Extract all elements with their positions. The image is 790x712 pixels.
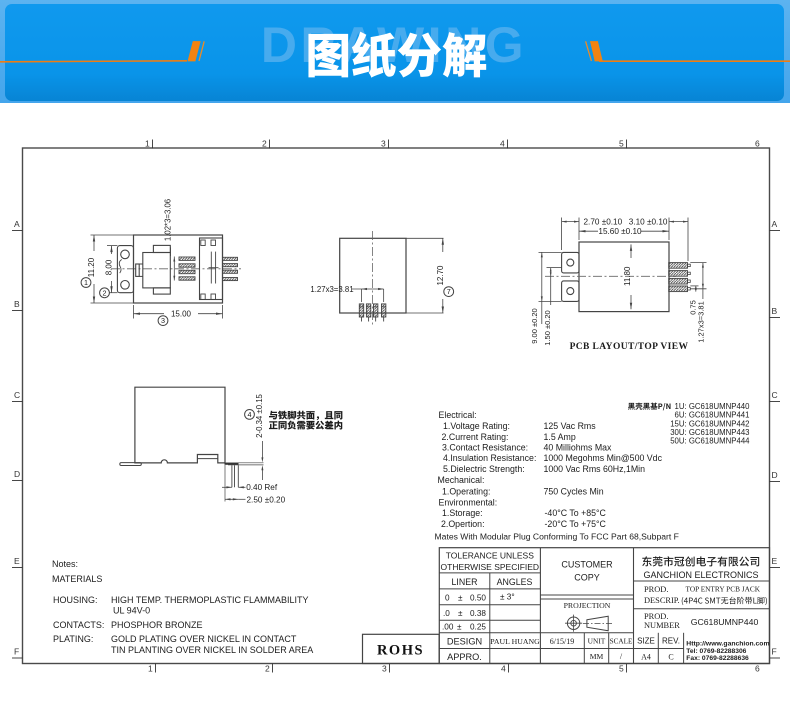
svg-text:2.Opertion:: 2.Opertion: bbox=[441, 519, 485, 529]
svg-text:2: 2 bbox=[262, 139, 267, 149]
svg-text:GANCHION ELECTRONICS: GANCHION ELECTRONICS bbox=[643, 570, 758, 580]
svg-text:Tel: 0769-82288306: Tel: 0769-82288306 bbox=[686, 648, 746, 655]
svg-text:6: 6 bbox=[755, 664, 760, 674]
svg-text:DESCRIP.: DESCRIP. bbox=[644, 596, 680, 605]
svg-text:4.Insulation Resistance:: 4.Insulation Resistance: bbox=[443, 453, 536, 463]
svg-text:E: E bbox=[772, 556, 778, 566]
svg-text:UNIT: UNIT bbox=[588, 637, 606, 646]
svg-text:6U: GC618UMNP441: 6U: GC618UMNP441 bbox=[675, 411, 750, 420]
svg-text:4: 4 bbox=[501, 664, 506, 674]
svg-text:2.50 ±0.20: 2.50 ±0.20 bbox=[247, 495, 286, 504]
svg-text:1000 Vac Rms 60Hz,1Min: 1000 Vac Rms 60Hz,1Min bbox=[544, 464, 646, 474]
svg-text:NUMBER: NUMBER bbox=[644, 621, 680, 630]
svg-text:15.00: 15.00 bbox=[171, 310, 192, 319]
svg-text:TOP ENTRY PCB JACK: TOP ENTRY PCB JACK bbox=[686, 585, 761, 594]
svg-text:TIN PLANTING OVER NICKEL IN SO: TIN PLANTING OVER NICKEL IN SOLDER AREA bbox=[111, 645, 313, 655]
svg-text:F: F bbox=[772, 647, 777, 657]
svg-text:A4: A4 bbox=[641, 653, 651, 662]
svg-text:1.Storage:: 1.Storage: bbox=[442, 508, 483, 518]
svg-text:2: 2 bbox=[265, 664, 270, 674]
svg-text:1.50 ±0.20: 1.50 ±0.20 bbox=[543, 310, 552, 345]
svg-text:11.80: 11.80 bbox=[623, 266, 632, 286]
svg-text:CUSTOMER: CUSTOMER bbox=[561, 560, 613, 570]
svg-text:±: ± bbox=[457, 623, 462, 632]
svg-text:PLATING:: PLATING: bbox=[53, 634, 93, 644]
svg-text:2.70 ±0.10: 2.70 ±0.10 bbox=[584, 217, 623, 226]
svg-text:D: D bbox=[772, 470, 778, 480]
svg-text:LINER: LINER bbox=[452, 577, 478, 587]
svg-text:6/15/19: 6/15/19 bbox=[550, 637, 574, 646]
svg-text:ROHS: ROHS bbox=[377, 643, 424, 659]
svg-text:TOLERANCE UNLESS: TOLERANCE UNLESS bbox=[446, 551, 535, 561]
svg-text:1.Operating:: 1.Operating: bbox=[442, 487, 490, 497]
svg-text:Mates With Modular Plug Confor: Mates With Modular Plug Conforming To FC… bbox=[435, 532, 679, 542]
svg-text:4: 4 bbox=[500, 139, 505, 149]
svg-text:0: 0 bbox=[445, 594, 450, 603]
svg-text:GOLD PLATING OVER NICKEL IN CO: GOLD PLATING OVER NICKEL IN CONTACT bbox=[111, 634, 297, 644]
svg-text:1.5 Amp: 1.5 Amp bbox=[544, 432, 576, 442]
svg-text:SIZE: SIZE bbox=[637, 637, 655, 646]
svg-text:PROD.: PROD. bbox=[644, 585, 668, 594]
svg-text:0.40 Ref: 0.40 Ref bbox=[246, 483, 278, 492]
svg-text:Http://www.ganchion.com: Http://www.ganchion.com bbox=[686, 640, 769, 647]
svg-text:8.00: 8.00 bbox=[105, 259, 114, 275]
svg-text:D: D bbox=[14, 469, 20, 479]
svg-text:±: ± bbox=[458, 609, 463, 618]
svg-text:F: F bbox=[14, 647, 19, 657]
svg-text:11.20: 11.20 bbox=[87, 257, 96, 277]
svg-text:DRAWING: DRAWING bbox=[261, 17, 527, 73]
svg-text:A: A bbox=[772, 219, 778, 229]
svg-text:SCALE: SCALE bbox=[610, 638, 633, 646]
svg-text:HOUSING:: HOUSING: bbox=[53, 595, 98, 605]
svg-text:PAUL HUANG: PAUL HUANG bbox=[490, 637, 540, 646]
svg-text:1.Voltage Rating:: 1.Voltage Rating: bbox=[443, 421, 510, 431]
svg-text:3: 3 bbox=[381, 139, 386, 149]
svg-text:APPRO.: APPRO. bbox=[447, 652, 482, 662]
svg-text:1.27x3=3.81: 1.27x3=3.81 bbox=[310, 285, 353, 294]
svg-text:40 Milliohms Max: 40 Milliohms Max bbox=[544, 443, 613, 453]
svg-text:UL 94V-0: UL 94V-0 bbox=[113, 606, 150, 616]
svg-text:PROJECTION: PROJECTION bbox=[564, 601, 611, 610]
svg-text:Notes:: Notes: bbox=[52, 559, 78, 569]
svg-text:1: 1 bbox=[145, 139, 150, 149]
svg-text:E: E bbox=[14, 556, 20, 566]
svg-text:± 3°: ± 3° bbox=[500, 593, 515, 602]
svg-text:4: 4 bbox=[248, 410, 252, 419]
svg-text:DESIGN: DESIGN bbox=[447, 637, 482, 647]
svg-text:B: B bbox=[772, 306, 778, 316]
svg-text:/: / bbox=[620, 652, 623, 661]
svg-text:B: B bbox=[14, 299, 20, 309]
svg-text:125 Vac Rms: 125 Vac Rms bbox=[544, 421, 597, 431]
svg-text:A: A bbox=[14, 219, 20, 229]
svg-text:1: 1 bbox=[84, 278, 88, 287]
svg-text:0.25: 0.25 bbox=[470, 623, 486, 632]
svg-text:3.Contact Resistance:: 3.Contact Resistance: bbox=[442, 443, 528, 453]
svg-text:PROD.: PROD. bbox=[644, 612, 668, 621]
svg-text:-20°C To +75°C: -20°C To +75°C bbox=[545, 519, 607, 529]
svg-text:15.60 ±0.10: 15.60 ±0.10 bbox=[598, 227, 642, 236]
svg-text:±: ± bbox=[458, 594, 463, 603]
svg-text:6: 6 bbox=[755, 139, 760, 149]
svg-text:5.Dielectric Strength:: 5.Dielectric Strength: bbox=[443, 464, 525, 474]
svg-text:2: 2 bbox=[103, 288, 107, 297]
svg-text:0.38: 0.38 bbox=[470, 609, 486, 618]
svg-text:750 Cycles Min: 750 Cycles Min bbox=[544, 487, 604, 497]
svg-text:5: 5 bbox=[619, 664, 624, 674]
svg-text:C: C bbox=[14, 390, 20, 400]
svg-text:1U: GC618UMNP440: 1U: GC618UMNP440 bbox=[675, 402, 751, 411]
svg-text:1.27x3=3.81: 1.27x3=3.81 bbox=[696, 301, 705, 343]
svg-text:2-0.34 ±0.15: 2-0.34 ±0.15 bbox=[255, 393, 264, 437]
svg-text:Electrical:: Electrical: bbox=[439, 410, 477, 420]
svg-text:HIGH TEMP. THERMOPLASTIC FLAMM: HIGH TEMP. THERMOPLASTIC FLAMMABILITY bbox=[111, 595, 309, 605]
svg-text:3.10 ±0.10: 3.10 ±0.10 bbox=[629, 217, 668, 226]
svg-text:3: 3 bbox=[382, 664, 387, 674]
svg-text:1.02*3=3.06: 1.02*3=3.06 bbox=[164, 199, 173, 241]
svg-text:.0: .0 bbox=[443, 609, 450, 618]
svg-text:CONTACTS:: CONTACTS: bbox=[53, 620, 104, 630]
svg-text:0.75: 0.75 bbox=[688, 300, 697, 315]
svg-text:1000 Megohms Min@500 Vdc: 1000 Megohms Min@500 Vdc bbox=[544, 453, 663, 463]
svg-text:0.50: 0.50 bbox=[470, 594, 486, 603]
svg-text:Environmental:: Environmental: bbox=[439, 498, 498, 508]
svg-text:12.70: 12.70 bbox=[436, 265, 445, 286]
svg-text:GC618UMNP440: GC618UMNP440 bbox=[691, 617, 759, 627]
svg-text:2.Current Rating:: 2.Current Rating: bbox=[442, 432, 509, 442]
svg-text:PHOSPHOR BRONZE: PHOSPHOR BRONZE bbox=[111, 620, 203, 630]
svg-text:-40°C To +85°C: -40°C To +85°C bbox=[545, 508, 607, 518]
svg-text:9.00 ±0.20: 9.00 ±0.20 bbox=[530, 308, 539, 343]
svg-text:COPY: COPY bbox=[574, 573, 600, 583]
svg-text:Mechanical:: Mechanical: bbox=[438, 475, 485, 485]
svg-text:3: 3 bbox=[161, 316, 165, 325]
svg-text:1: 1 bbox=[148, 664, 153, 674]
svg-text:50U: GC618UMNP444: 50U: GC618UMNP444 bbox=[670, 436, 750, 445]
svg-text:7: 7 bbox=[447, 287, 451, 296]
svg-text:ANGLES: ANGLES bbox=[497, 577, 533, 587]
svg-text:MATERIALS: MATERIALS bbox=[52, 574, 102, 584]
svg-text:C: C bbox=[668, 653, 673, 662]
svg-text:REV.: REV. bbox=[662, 637, 680, 646]
svg-text:PCB LAYOUT/TOP VIEW: PCB LAYOUT/TOP VIEW bbox=[570, 342, 689, 352]
svg-text:Fax: 0769-82288636: Fax: 0769-82288636 bbox=[686, 655, 749, 662]
svg-text:MM: MM bbox=[590, 652, 604, 661]
svg-text:OTHERWISE SPECIFIED: OTHERWISE SPECIFIED bbox=[441, 562, 540, 572]
svg-text:C: C bbox=[772, 390, 778, 400]
svg-text:5: 5 bbox=[619, 139, 624, 149]
svg-text:.00: .00 bbox=[442, 623, 454, 632]
